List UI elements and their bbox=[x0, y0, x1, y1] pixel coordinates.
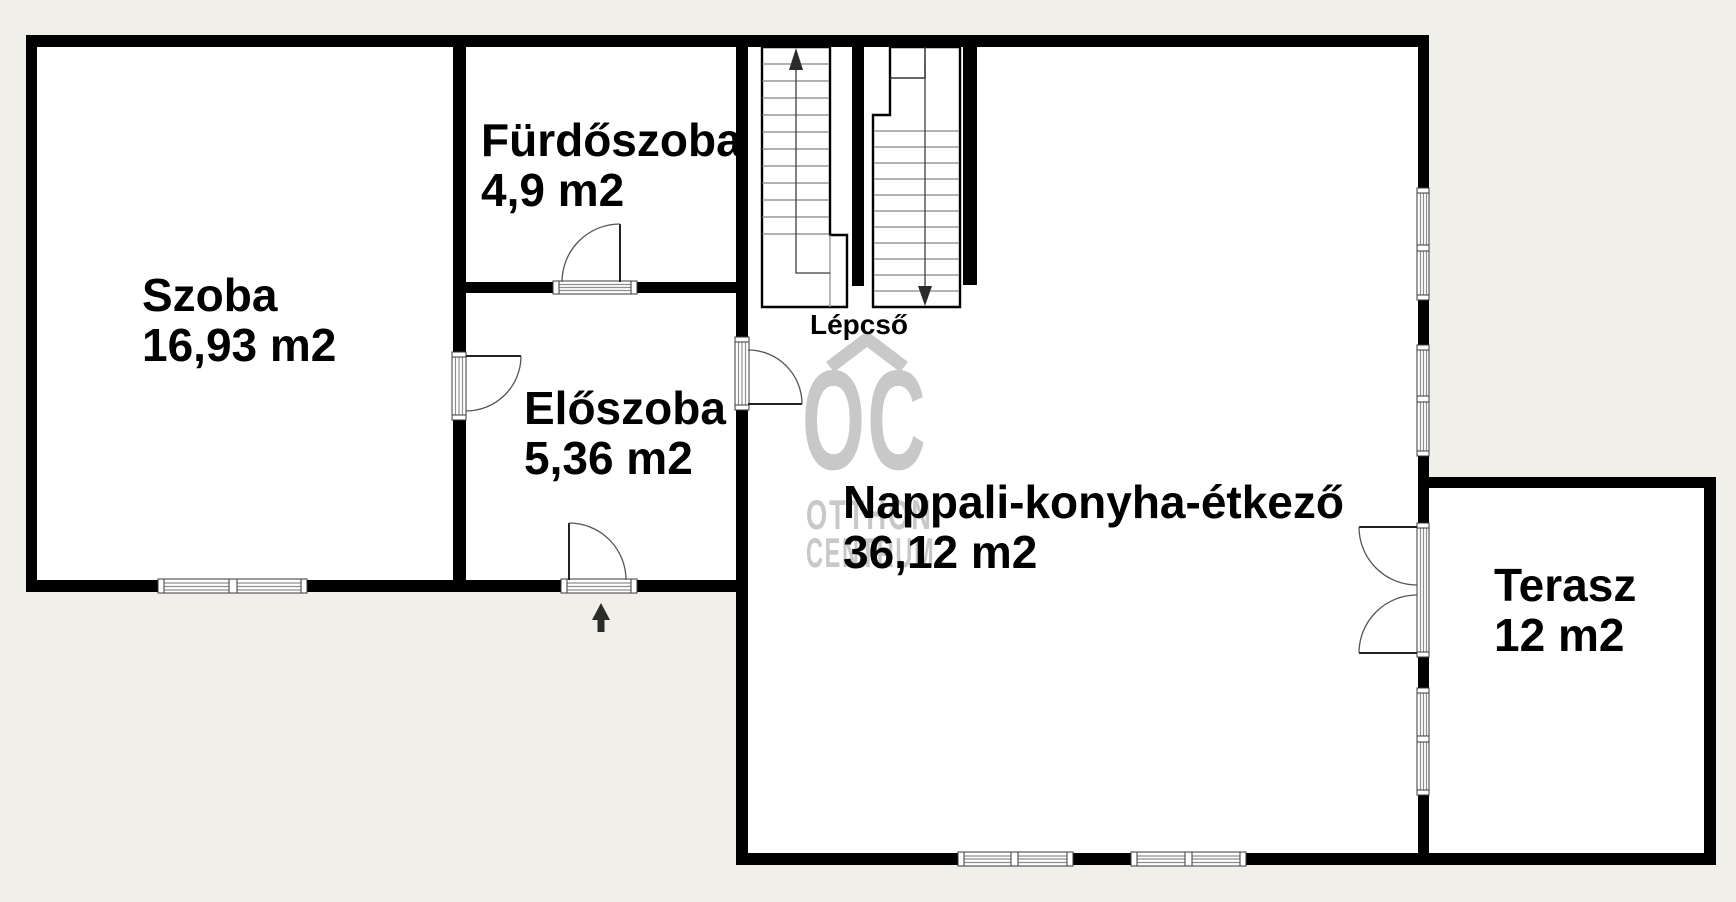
wall-segment bbox=[26, 580, 162, 592]
wall-segment bbox=[453, 47, 466, 352]
wall-segment bbox=[736, 853, 962, 865]
room-area: 5,36 m2 bbox=[524, 433, 726, 483]
wall-segment bbox=[1418, 657, 1429, 690]
wall-segment bbox=[1243, 853, 1716, 865]
wall-segment bbox=[1418, 300, 1429, 345]
wall-segment bbox=[852, 47, 864, 286]
wall-segment bbox=[303, 580, 563, 592]
stairs-label: Lépcső bbox=[810, 311, 908, 339]
floor-plan: OC OTTHON CENTRUM Szoba 16,93 m2 Fürdősz… bbox=[0, 0, 1736, 902]
room-area: 36,12 m2 bbox=[843, 527, 1344, 577]
entry-arrow-icon bbox=[592, 603, 610, 632]
window-east-2 bbox=[1417, 345, 1429, 456]
wall-segment bbox=[1704, 477, 1716, 865]
window-east-1 bbox=[1417, 188, 1429, 300]
wall-segment bbox=[1418, 454, 1429, 523]
wall-segment bbox=[1418, 793, 1429, 865]
wall-segment bbox=[637, 282, 736, 293]
room-name: Szoba bbox=[142, 270, 336, 320]
window-szoba-south bbox=[158, 579, 307, 593]
wall-segment bbox=[635, 580, 748, 592]
room-area: 16,93 m2 bbox=[142, 320, 336, 370]
room-label-szoba: Szoba 16,93 m2 bbox=[142, 270, 336, 370]
room-name: Terasz bbox=[1494, 560, 1636, 610]
wall-segment bbox=[453, 420, 466, 580]
wall-segment bbox=[963, 47, 977, 285]
room-label-furdoszoba: Fürdőszoba 4,9 m2 bbox=[481, 115, 742, 215]
wall-segment bbox=[736, 410, 748, 865]
room-label-nappali: Nappali-konyha-étkező 36,12 m2 bbox=[843, 477, 1344, 577]
wall-segment bbox=[466, 282, 553, 293]
watermark-logo: OC bbox=[802, 350, 928, 492]
wall-segment bbox=[1429, 477, 1716, 488]
room-name: Nappali-konyha-étkező bbox=[843, 477, 1344, 527]
window-east-3 bbox=[1417, 688, 1429, 795]
room-area: 4,9 m2 bbox=[481, 165, 742, 215]
window-living-south-2 bbox=[1131, 852, 1246, 866]
room-label-terasz: Terasz 12 m2 bbox=[1494, 560, 1636, 660]
room-area: 12 m2 bbox=[1494, 610, 1636, 660]
window-living-south-1 bbox=[958, 852, 1073, 866]
room-label-eloszoba: Előszoba 5,36 m2 bbox=[524, 383, 726, 483]
room-name: Előszoba bbox=[524, 383, 726, 433]
wall-segment bbox=[1418, 35, 1429, 190]
terrace-floor bbox=[1429, 477, 1716, 865]
wall-segment bbox=[26, 35, 1429, 47]
wall-segment bbox=[1070, 853, 1134, 865]
wall-segment bbox=[26, 35, 37, 592]
room-name: Fürdőszoba bbox=[481, 115, 742, 165]
